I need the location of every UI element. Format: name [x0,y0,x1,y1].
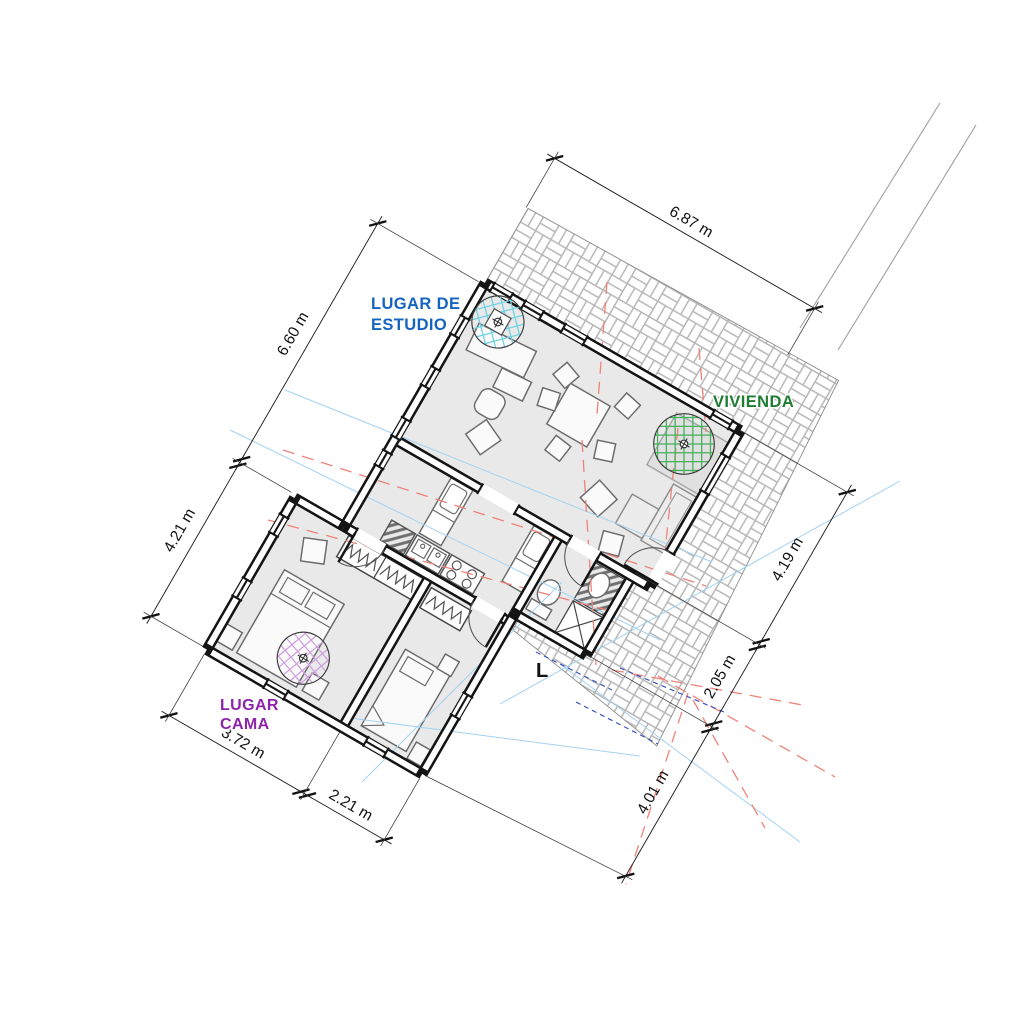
floor-plan-canvas: 6.87 m6.60 m4.21 m3.72 m2.21 m4.19 m2.05… [0,0,1024,1024]
room-label-study-line1: LUGAR DE [371,295,460,313]
point-label-l: L [536,660,548,682]
bedroom-chair [301,538,328,565]
room-label-study-line2: ESTUDIO [371,316,447,334]
floor-plan-page: 6.87 m6.60 m4.21 m3.72 m2.21 m4.19 m2.05… [0,0,1024,1024]
room-label-cama-line1: LUGAR [220,697,279,714]
room-label-cama-line2: CAMA [220,716,270,733]
room-label-vivienda: VIVIENDA [713,393,794,411]
dining-chair [594,440,616,462]
